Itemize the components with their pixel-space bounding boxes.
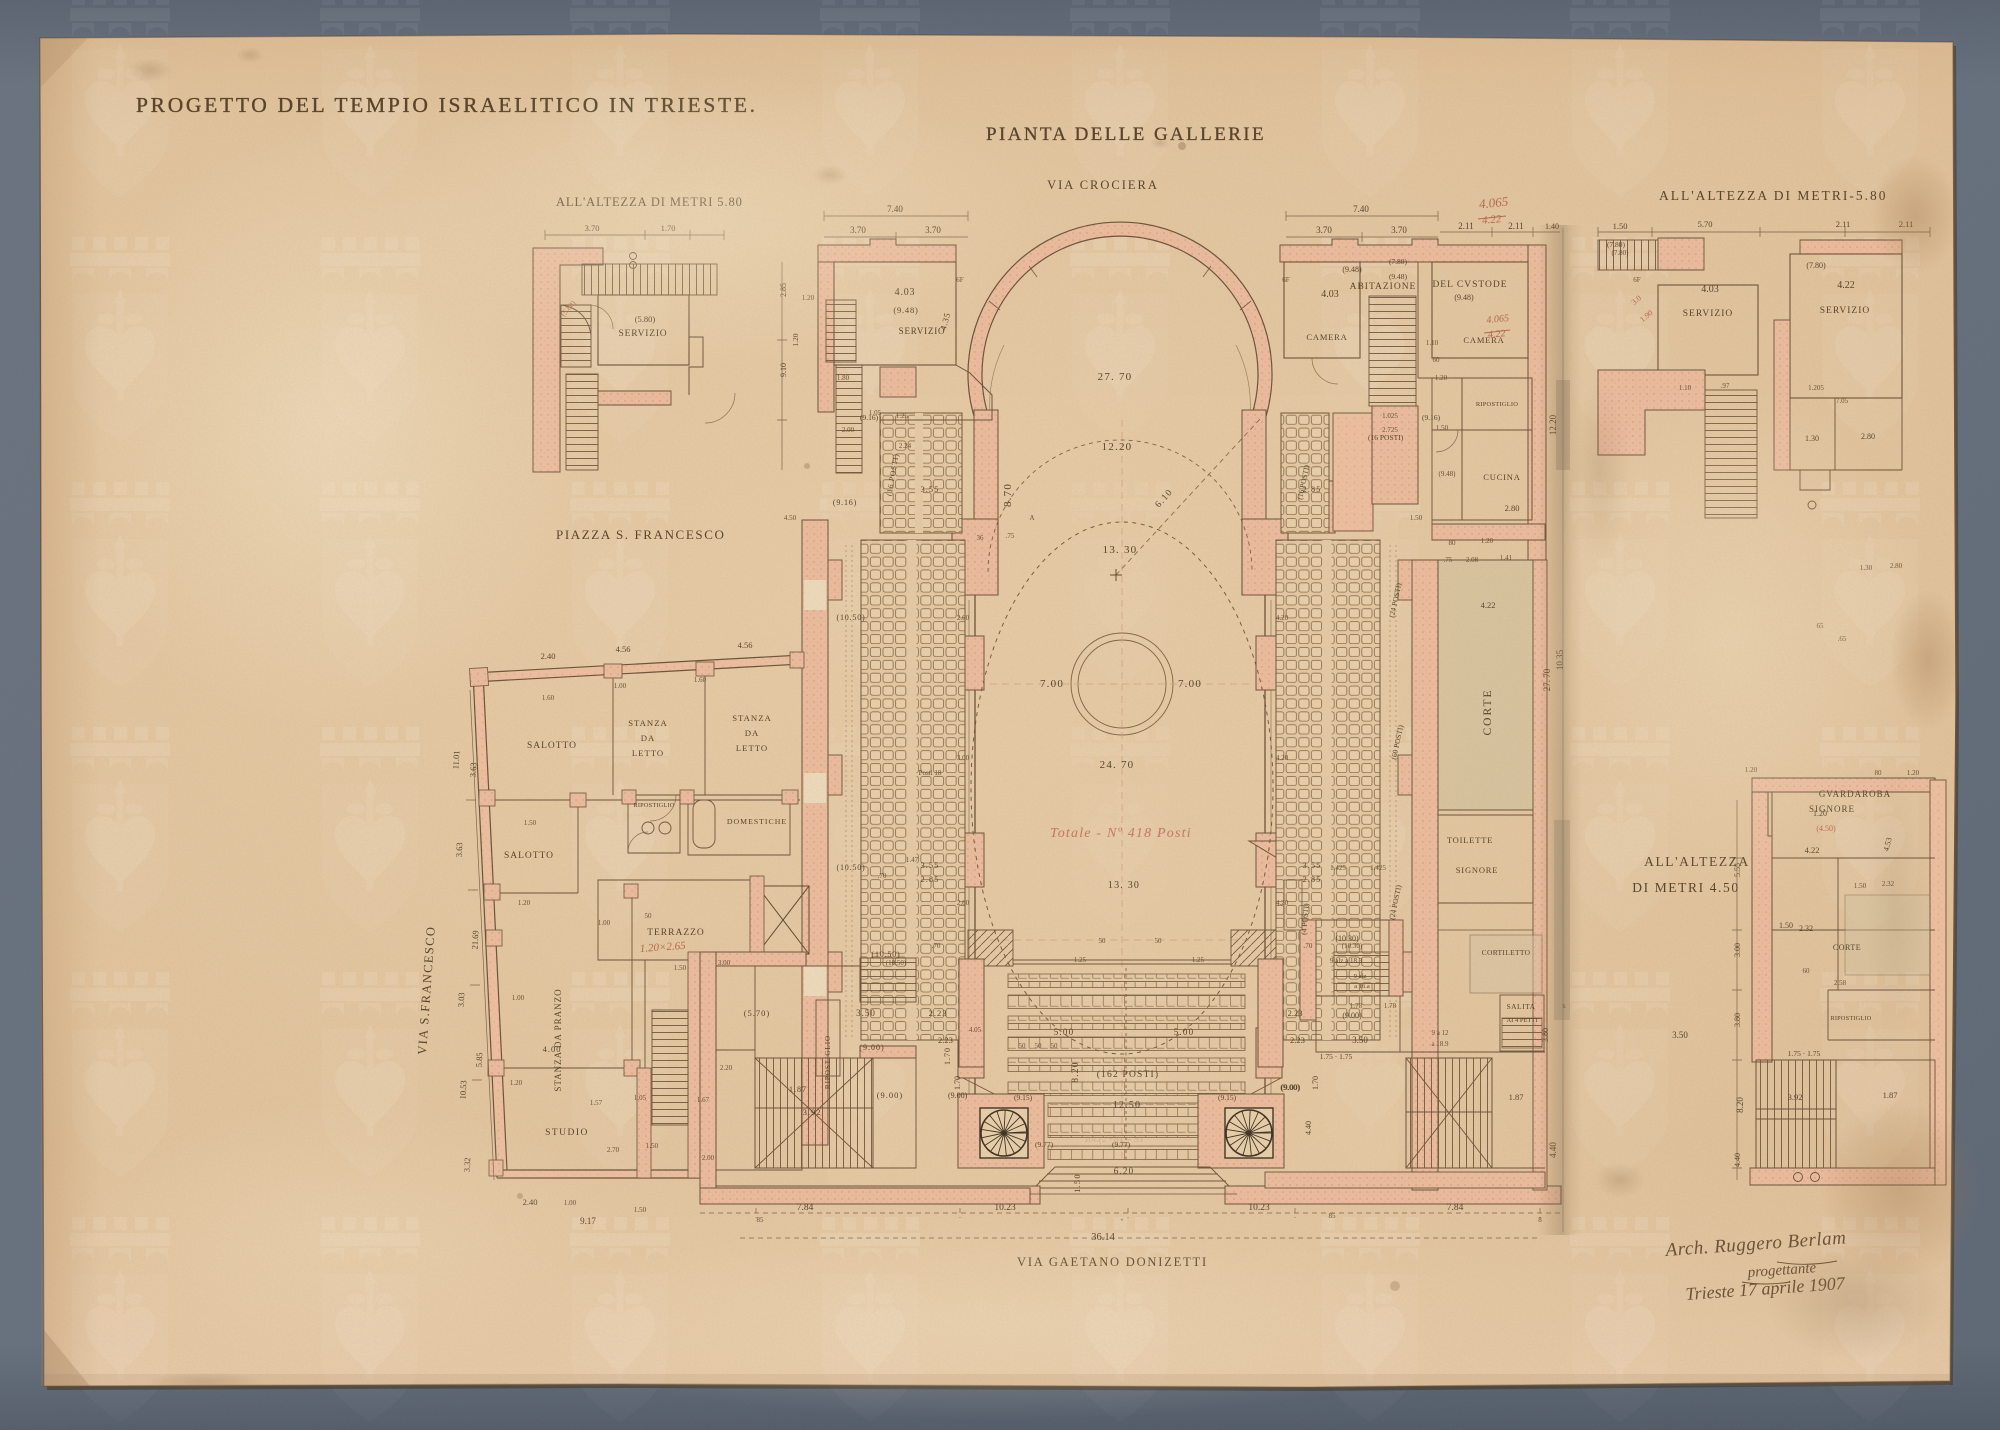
svg-text:Totale - Nº 418 Posti: Totale - Nº 418 Posti [1050, 826, 1192, 841]
svg-text:1.70: 1.70 [1311, 1076, 1320, 1090]
svg-text:3.70: 3.70 [1316, 225, 1332, 235]
svg-text:6F: 6F [956, 276, 964, 284]
svg-text:PROGETTO DEL TEMPIO ISRAELITIC: PROGETTO DEL TEMPIO ISRAELITICO IN TRIES… [136, 93, 758, 117]
svg-text:2.23: 2.23 [938, 1035, 953, 1045]
svg-text:7.40: 7.40 [1353, 204, 1369, 214]
svg-text:1.47: 1.47 [906, 856, 919, 864]
svg-text:2.70: 2.70 [607, 1146, 620, 1154]
svg-text:13. 30: 13. 30 [1108, 880, 1140, 891]
svg-text:2.85: 2.85 [921, 875, 940, 884]
svg-text:5.85: 5.85 [474, 1052, 485, 1067]
svg-text:12.20: 12.20 [1548, 414, 1558, 435]
svg-text:a 16.a: a 16.a [1354, 983, 1370, 990]
svg-text:DA: DA [641, 733, 656, 743]
svg-text:.75: .75 [1444, 556, 1453, 564]
svg-text:STUDIO: STUDIO [545, 1128, 589, 1138]
svg-text:4.56: 4.56 [738, 640, 753, 650]
svg-text:VIA CROCIERA: VIA CROCIERA [1047, 178, 1159, 192]
svg-text:(9.48): (9.48) [1389, 272, 1408, 281]
svg-text:(7.80): (7.80) [1806, 261, 1826, 270]
svg-text:3.80: 3.80 [1541, 1028, 1550, 1042]
svg-text:2.80: 2.80 [1890, 562, 1903, 570]
svg-text:1.05: 1.05 [634, 1094, 647, 1102]
svg-text:24. 70: 24. 70 [1100, 759, 1135, 771]
svg-text:7.05: 7.05 [1836, 397, 1849, 405]
svg-text:SALITA: SALITA [1506, 1002, 1535, 1011]
svg-text:2.23: 2.23 [1288, 1008, 1303, 1018]
svg-text:3.32: 3.32 [462, 1157, 473, 1172]
svg-text:(10.50): (10.50) [886, 959, 907, 967]
svg-text:(10.50): (10.50) [872, 950, 901, 959]
svg-text:2.85: 2.85 [1303, 875, 1322, 884]
svg-text:1.50: 1.50 [1613, 221, 1628, 231]
svg-text:2.20: 2.20 [720, 1064, 733, 1072]
svg-text:TERRAZZO: TERRAZZO [647, 928, 705, 938]
svg-text:2.80: 2.80 [1861, 432, 1875, 441]
svg-text:(9.16): (9.16) [1422, 413, 1441, 422]
svg-text:2.08: 2.08 [1466, 556, 1479, 564]
svg-text:GVARDAROBA: GVARDAROBA [1819, 789, 1891, 799]
svg-text:3.00: 3.00 [957, 754, 970, 762]
svg-text:CORTE: CORTE [1833, 943, 1861, 952]
svg-text:SERVIZIO: SERVIZIO [619, 329, 668, 339]
svg-text:4.20: 4.20 [1276, 614, 1289, 622]
svg-text:1.67: 1.67 [697, 1096, 710, 1104]
svg-text:1.50: 1.50 [1779, 921, 1793, 930]
svg-text:4.40: 4.40 [1733, 1153, 1742, 1167]
svg-text:(10.30): (10.30) [1342, 942, 1363, 950]
svg-text:3.70: 3.70 [1391, 225, 1407, 235]
svg-text:4.20: 4.20 [1276, 754, 1289, 762]
svg-text:5.00: 5.00 [1054, 1027, 1075, 1037]
svg-text:5.55: 5.55 [1733, 863, 1742, 877]
svg-text:(9.48): (9.48) [1454, 293, 1474, 302]
svg-text:50: 50 [1019, 1042, 1027, 1050]
svg-text:7.84: 7.84 [797, 1203, 814, 1213]
svg-text:1.20: 1.20 [1907, 769, 1920, 777]
svg-text:7.40: 7.40 [887, 204, 903, 214]
svg-text:PIAZZA S. FRANCESCO: PIAZZA S. FRANCESCO [556, 527, 725, 542]
svg-text:RIPOSTIGLIO: RIPOSTIGLIO [1476, 401, 1518, 408]
svg-text:21.69: 21.69 [470, 930, 481, 950]
svg-text:(16 POSTI): (16 POSTI) [1368, 433, 1404, 442]
svg-text:1.80: 1.80 [837, 374, 850, 382]
svg-text:6.20: 6.20 [1114, 1166, 1135, 1176]
svg-text:STANZA: STANZA [732, 713, 772, 723]
svg-text:1.00: 1.00 [564, 1199, 577, 1207]
svg-text:DA: DA [745, 728, 760, 738]
svg-text:(9.00): (9.00) [1342, 1011, 1362, 1020]
svg-text:3.70: 3.70 [850, 225, 866, 235]
svg-text:3.80: 3.80 [1733, 1013, 1742, 1027]
svg-text:11.01: 11.01 [451, 750, 462, 769]
svg-text:(9.00): (9.00) [948, 1091, 968, 1100]
svg-text:50: 50 [1099, 937, 1107, 945]
svg-text:1.50: 1.50 [646, 1142, 659, 1150]
svg-text:(9.00): (9.00) [877, 1090, 904, 1100]
svg-text:4.50: 4.50 [784, 514, 797, 522]
svg-text:1.20: 1.20 [802, 294, 815, 302]
svg-text:AI 4 PETTI: AI 4 PETTI [1506, 1017, 1537, 1024]
svg-text:1.425: 1.425 [1330, 864, 1346, 872]
svg-text:LETTO: LETTO [736, 743, 768, 753]
svg-text:CORTE: CORTE [1482, 688, 1494, 735]
svg-text:.70: .70 [878, 872, 887, 880]
svg-text:3.63: 3.63 [468, 762, 479, 777]
svg-text:(7.80): (7.80) [1389, 257, 1408, 266]
svg-text:2.60: 2.60 [957, 899, 970, 907]
svg-text:4.05: 4.05 [969, 1026, 982, 1034]
svg-text:6F: 6F [1633, 276, 1641, 284]
svg-text:1.20: 1.20 [1813, 809, 1827, 818]
svg-text:50: 50 [1051, 1042, 1059, 1050]
svg-text:1.57: 1.57 [590, 1099, 603, 1107]
svg-text:9.17: 9.17 [580, 1216, 596, 1226]
svg-text:VIA GAETANO DONIZETTI: VIA GAETANO DONIZETTI [1017, 1255, 1208, 1269]
svg-text:2.11: 2.11 [1836, 219, 1851, 229]
svg-text:50: 50 [645, 912, 653, 920]
svg-text:ALL'ALTEZZA DI METRI-5.80: ALL'ALTEZZA DI METRI-5.80 [1659, 188, 1888, 203]
svg-text:A: A [1029, 514, 1034, 522]
svg-text:1.75 · 1.75: 1.75 · 1.75 [1320, 1052, 1353, 1061]
svg-text:3.50: 3.50 [1672, 1030, 1688, 1040]
svg-text:1.20: 1.20 [791, 333, 800, 346]
svg-text:4.065: 4.065 [1486, 313, 1510, 326]
svg-text:2.32: 2.32 [1882, 880, 1895, 888]
svg-text:2.24: 2.24 [899, 442, 912, 450]
svg-text:4.065: 4.065 [1478, 193, 1509, 211]
svg-text:50: 50 [1155, 937, 1163, 945]
svg-text:3.00: 3.00 [1733, 943, 1742, 957]
svg-text:2.00: 2.00 [842, 426, 855, 434]
svg-text:4.40: 4.40 [1548, 1142, 1558, 1158]
svg-text:3.70: 3.70 [925, 225, 941, 235]
svg-text:2.11: 2.11 [1508, 221, 1523, 231]
svg-text:4.56: 4.56 [616, 644, 631, 654]
svg-text:1.87: 1.87 [1883, 1090, 1898, 1100]
svg-text:2.23: 2.23 [1290, 1035, 1305, 1045]
svg-text:1.50: 1.50 [1436, 424, 1449, 432]
svg-text:(9.00): (9.00) [1281, 1083, 1301, 1092]
svg-text:9 alz a 18.3: 9 alz a 18.3 [1330, 957, 1363, 965]
svg-text:(9.77): (9.77) [1035, 1140, 1054, 1149]
svg-text:2.40: 2.40 [523, 1197, 538, 1207]
svg-text:3.50: 3.50 [856, 1008, 876, 1018]
svg-text:.70: .70 [932, 942, 941, 950]
svg-text:8.70: 8.70 [1002, 483, 1014, 507]
svg-text:8: 8 [1538, 1216, 1542, 1224]
svg-text:(4.50): (4.50) [1816, 824, 1836, 833]
svg-text:50: 50 [1035, 1042, 1043, 1050]
svg-text:SALOTTO: SALOTTO [504, 851, 554, 861]
svg-text:80: 80 [1449, 539, 1457, 547]
svg-text:9.10: 9.10 [779, 363, 788, 377]
svg-text:.: . [1501, 1061, 1503, 1069]
svg-text:1.50: 1.50 [1854, 882, 1867, 890]
svg-text:1.50: 1.50 [524, 819, 537, 827]
svg-text:SALOTTO: SALOTTO [527, 741, 577, 751]
svg-text:1.60: 1.60 [542, 694, 555, 702]
svg-text:1.025: 1.025 [1382, 412, 1398, 420]
svg-text:1.20: 1.20 [1435, 374, 1448, 382]
svg-text:1.20: 1.20 [1481, 537, 1494, 545]
svg-text:4.22: 4.22 [1481, 600, 1496, 610]
svg-text:10.53: 10.53 [458, 1080, 469, 1100]
svg-text:DI METRI 4.50: DI METRI 4.50 [1632, 880, 1739, 895]
svg-text:4.40: 4.40 [1304, 1121, 1313, 1135]
svg-text:7.84: 7.84 [1447, 1203, 1464, 1213]
svg-text:Tot.(2+8) = 51: Tot.(2+8) = 51 [1084, 1134, 1144, 1145]
svg-text:12.20: 12.20 [1102, 441, 1133, 453]
svg-text:STANZA: STANZA [628, 718, 668, 728]
svg-text:2.00: 2.00 [702, 1154, 715, 1162]
svg-text:4.00: 4.00 [543, 1044, 562, 1054]
svg-text:10.23: 10.23 [994, 1203, 1016, 1213]
svg-text:2.32: 2.32 [1799, 924, 1813, 933]
svg-text:1.10: 1.10 [1426, 339, 1439, 347]
svg-text:80: 80 [1875, 769, 1883, 777]
svg-text:DOMESTICHE: DOMESTICHE [727, 817, 787, 826]
svg-text:1.25: 1.25 [1192, 956, 1205, 964]
svg-text:(9.48): (9.48) [1439, 470, 1457, 478]
svg-text:3.55: 3.55 [921, 861, 940, 870]
svg-text:8.20: 8.20 [1735, 1097, 1745, 1113]
svg-text:1.50: 1.50 [634, 1206, 647, 1214]
svg-text:SERVIZIO: SERVIZIO [1683, 309, 1734, 319]
svg-text:27. 70: 27. 70 [1098, 371, 1133, 383]
svg-text:1.20: 1.20 [1745, 766, 1758, 774]
svg-text:x: x [1562, 1002, 1566, 1010]
svg-text:PIANTA DELLE GALLERIE: PIANTA DELLE GALLERIE [986, 124, 1266, 145]
svg-text:+: + [1120, 1217, 1124, 1224]
svg-text:(162 POSTI): (162 POSTI) [1097, 1069, 1160, 1080]
svg-text:8.20: 8.20 [1071, 1061, 1081, 1082]
svg-text:RIPOSTIGLIO: RIPOSTIGLIO [824, 1035, 832, 1089]
svg-text:3.55: 3.55 [1303, 861, 1322, 870]
svg-text:85: 85 [757, 1216, 765, 1224]
svg-text:(5.80): (5.80) [635, 314, 656, 324]
svg-text:Posti 18: Posti 18 [919, 769, 942, 777]
svg-text:1.10: 1.10 [1679, 384, 1692, 392]
svg-text:1.50: 1.50 [674, 964, 687, 972]
svg-text:3.92: 3.92 [803, 1107, 822, 1117]
svg-text:a 18.9: a 18.9 [1431, 1040, 1449, 1048]
svg-text:1.40: 1.40 [1545, 222, 1559, 231]
svg-text:7.00: 7.00 [1040, 678, 1064, 690]
svg-text:2.11: 2.11 [1899, 219, 1914, 229]
svg-text:10.23: 10.23 [1248, 1203, 1270, 1213]
svg-text:1.25: 1.25 [1074, 956, 1087, 964]
svg-text:60: 60 [1803, 967, 1811, 975]
svg-text:4.03: 4.03 [1701, 284, 1719, 295]
svg-text:3.70: 3.70 [585, 223, 600, 233]
svg-text:CUCINA: CUCINA [1483, 472, 1520, 482]
svg-text:1.205: 1.205 [1808, 384, 1824, 392]
svg-text:1.87: 1.87 [1509, 1092, 1524, 1102]
svg-text:2.11: 2.11 [1458, 221, 1473, 231]
svg-text:1.50: 1.50 [1410, 514, 1423, 522]
svg-text:36: 36 [977, 534, 985, 542]
svg-text:(9.48): (9.48) [1342, 265, 1362, 274]
svg-text:2.58: 2.58 [1834, 979, 1847, 987]
svg-text:SIGNORE: SIGNORE [1456, 865, 1498, 875]
svg-text:3.92: 3.92 [1788, 1092, 1803, 1102]
svg-text:1.70: 1.70 [661, 223, 676, 233]
svg-text:2.40: 2.40 [541, 651, 556, 661]
svg-text:2.85: 2.85 [779, 283, 788, 297]
svg-text:1.20: 1.20 [510, 1079, 523, 1087]
svg-text:1.78: 1.78 [1350, 1002, 1363, 1010]
svg-text:(9.16): (9.16) [833, 498, 857, 507]
svg-text:4.03: 4.03 [1321, 289, 1339, 300]
svg-text:2.23: 2.23 [929, 1008, 948, 1018]
svg-text:RIPOSTIGLIO: RIPOSTIGLIO [633, 802, 674, 809]
svg-text:7.00: 7.00 [1178, 678, 1202, 690]
svg-text:.70: .70 [1304, 942, 1313, 950]
svg-text:1.50: 1.50 [1072, 1173, 1082, 1193]
svg-text:(7.80): (7.80) [1612, 249, 1630, 257]
svg-text:27. 70: 27. 70 [1542, 668, 1552, 691]
svg-text:3.55: 3.55 [921, 485, 940, 494]
svg-text:1.41: 1.41 [1500, 554, 1513, 562]
svg-text:(5.70): (5.70) [744, 1008, 771, 1018]
svg-text:RIPOSTIGLIO: RIPOSTIGLIO [1830, 1015, 1871, 1022]
svg-text:6F: 6F [1282, 276, 1290, 284]
svg-text:(9.15): (9.15) [1014, 1093, 1033, 1102]
svg-text:2.60: 2.60 [957, 614, 970, 622]
svg-text:1.78: 1.78 [1384, 1002, 1397, 1010]
svg-text:TOILETTE: TOILETTE [1447, 835, 1493, 845]
svg-text:3.50: 3.50 [1352, 1035, 1368, 1045]
svg-text:2.725: 2.725 [1382, 426, 1398, 434]
svg-text:9 a 12: 9 a 12 [1431, 1029, 1449, 1037]
svg-text:STANZA DA PRANZO: STANZA DA PRANZO [553, 988, 563, 1091]
svg-text:1.75 · 1.75: 1.75 · 1.75 [1788, 1049, 1821, 1058]
svg-text:1.70: 1.70 [953, 1076, 962, 1090]
svg-text:1.25: 1.25 [896, 412, 909, 420]
svg-text:5.00: 5.00 [1174, 1027, 1195, 1037]
svg-text:5.70: 5.70 [1698, 219, 1713, 229]
svg-text:1.30: 1.30 [1805, 434, 1819, 443]
svg-text:3.03: 3.03 [456, 992, 467, 1007]
svg-text:.97: .97 [1721, 382, 1730, 390]
svg-text:1.05: 1.05 [869, 409, 882, 417]
svg-text:3.63: 3.63 [454, 842, 465, 857]
svg-text:LETTO: LETTO [632, 748, 664, 758]
svg-text:1.60: 1.60 [694, 676, 707, 684]
svg-text:12.50: 12.50 [1113, 1100, 1142, 1111]
svg-text:4.22: 4.22 [1487, 328, 1506, 341]
svg-text:4.03: 4.03 [895, 287, 916, 298]
svg-text:SERVIZIO: SERVIZIO [1820, 306, 1871, 316]
svg-text:(10.50): (10.50) [837, 613, 866, 622]
svg-text:(9.15): (9.15) [1218, 1093, 1237, 1102]
svg-text:.75: .75 [1006, 532, 1015, 540]
svg-text:1.425: 1.425 [1370, 864, 1386, 872]
svg-text:1.87: 1.87 [789, 1085, 807, 1094]
svg-text:(9.00): (9.00) [859, 1043, 884, 1052]
svg-text:85: 85 [1329, 1212, 1337, 1220]
svg-text:ALL'ALTEZZA DI METRI 5.80: ALL'ALTEZZA DI METRI 5.80 [556, 195, 743, 209]
svg-text:(10.50): (10.50) [837, 863, 866, 872]
svg-text:1.20: 1.20 [518, 899, 531, 907]
svg-text:2.80: 2.80 [1505, 503, 1520, 513]
svg-text:10.35: 10.35 [1555, 649, 1565, 670]
svg-text:36.14: 36.14 [1091, 1232, 1115, 1243]
svg-text:1.00: 1.00 [598, 919, 611, 927]
svg-text:1.00: 1.00 [512, 994, 525, 1002]
svg-text:CAMERA: CAMERA [1306, 332, 1347, 342]
svg-text:4.22: 4.22 [1805, 845, 1820, 855]
svg-text:1.70: 1.70 [943, 1047, 952, 1065]
svg-text:(7.80): (7.80) [1607, 240, 1626, 249]
svg-text:13. 30: 13. 30 [1103, 544, 1138, 556]
svg-text:(9.48): (9.48) [893, 305, 918, 315]
svg-text:4.20: 4.20 [1276, 899, 1289, 907]
svg-text:4.22: 4.22 [1837, 280, 1855, 291]
svg-text:1.30: 1.30 [1860, 564, 1873, 572]
svg-text:.65: .65 [1838, 635, 1847, 643]
svg-text:ABITAZIONE: ABITAZIONE [1350, 282, 1417, 292]
svg-text:3.00: 3.00 [718, 959, 731, 967]
svg-text:CORTILETTO: CORTILETTO [1482, 948, 1531, 957]
svg-text:9 alz: 9 alz [1354, 973, 1367, 980]
svg-text:60: 60 [1433, 356, 1441, 364]
svg-text:1.00: 1.00 [614, 682, 627, 690]
svg-text:DEL CVSTODE: DEL CVSTODE [1432, 280, 1507, 290]
svg-text:65: 65 [1817, 622, 1825, 630]
svg-text:4.22: 4.22 [1481, 213, 1502, 227]
